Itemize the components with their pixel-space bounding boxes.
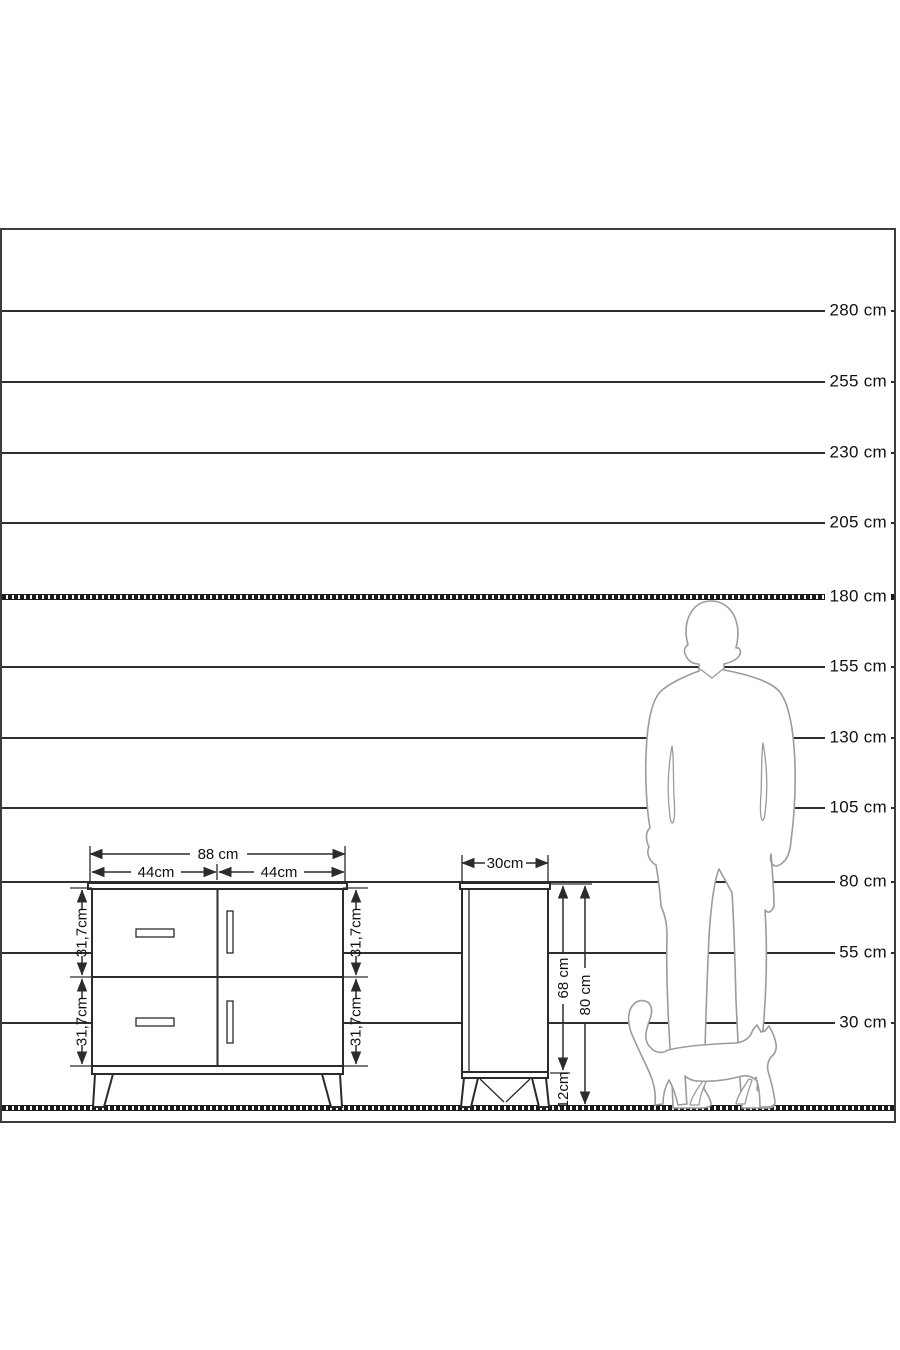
scale-label-130: 130 cm [825, 727, 891, 749]
scale-label-280: 280 cm [825, 300, 891, 322]
front-base [92, 1066, 343, 1074]
scale-label-255: 255 cm [825, 371, 891, 393]
front-width-label: 88 cm [198, 846, 239, 863]
front-width-dimension: 88 cm 44cm 44cm [90, 846, 345, 882]
front-height-top-right-label: 31,7cm [348, 908, 365, 957]
side-depth-dimension: 30cm [462, 855, 548, 882]
side-leg-left [461, 1078, 478, 1107]
scale-label-155: 155 cm [825, 656, 891, 678]
cabinet-front-view: 88 cm 44cm 44cm 31,7cm [70, 846, 368, 1107]
cat-mark-dot [755, 1077, 758, 1080]
scale-label-30: 30 cm [835, 1012, 891, 1034]
side-body-height-label: 68 cm [555, 958, 572, 999]
scale-label-105: 105 cm [825, 797, 891, 819]
front-leg-left [93, 1074, 113, 1107]
side-leg-height-label: 12cm [555, 1072, 572, 1109]
side-leg-brace-right [506, 1079, 530, 1102]
scale-label-230: 230 cm [825, 442, 891, 464]
furniture-dimension-diagram: 88 cm 44cm 44cm 31,7cm [0, 0, 900, 1350]
side-body [462, 889, 548, 1072]
side-leg-right [532, 1078, 549, 1107]
scale-label-55: 55 cm [835, 942, 891, 964]
side-depth-label: 30cm [487, 855, 524, 872]
side-total-height-label: 80 cm [577, 975, 594, 1016]
front-left-half-label: 44cm [138, 864, 175, 881]
cabinet-side-view: 30cm 68 cm 80 cm 12cm [460, 855, 594, 1108]
front-height-top-left-label: 31,7cm [74, 908, 91, 957]
front-right-half-label: 44cm [261, 864, 298, 881]
side-height-dimensions: 68 cm 80 cm 12cm [550, 884, 594, 1108]
scale-label-205: 205 cm [825, 512, 891, 534]
diagram-drawing: 88 cm 44cm 44cm 31,7cm [0, 0, 900, 1350]
side-leg-brace-left [480, 1079, 504, 1102]
front-leg-right [322, 1074, 342, 1107]
scale-label-80: 80 cm [835, 871, 891, 893]
front-height-bottom-right-label: 31,7cm [348, 997, 365, 1046]
scale-label-180: 180 cm [825, 586, 891, 608]
front-height-bottom-left-label: 31,7cm [74, 997, 91, 1046]
